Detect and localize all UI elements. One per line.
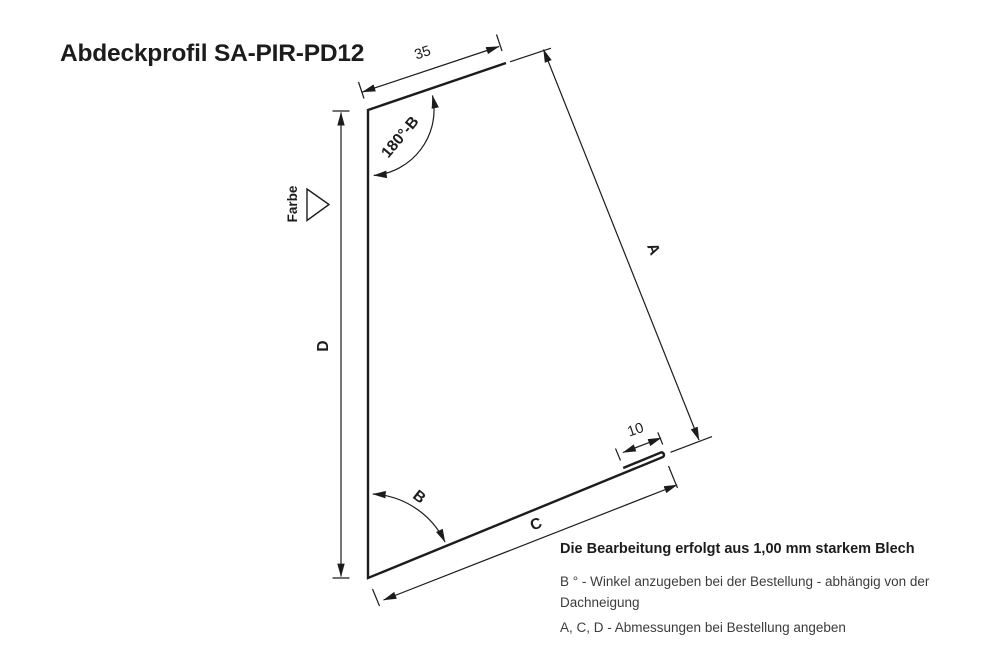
- page-title: Abdeckprofil SA-PIR-PD12: [60, 40, 364, 68]
- angle-arc: [373, 494, 445, 542]
- color-triangle-icon: [307, 189, 329, 221]
- angle-label-b: B: [409, 487, 428, 507]
- color-side-marker: Farbe: [285, 185, 329, 222]
- dimension-line: [623, 438, 661, 453]
- dimension-label-d: D: [315, 340, 332, 351]
- angle-bottom: B: [373, 487, 445, 542]
- dimension-line: [544, 50, 700, 441]
- extension-stub: [373, 589, 380, 606]
- angle-top: 180°-B: [374, 96, 434, 176]
- color-marker-label: Farbe: [285, 185, 300, 222]
- dimensions-order-note: A, C, D - Abmessungen bei Bestellung ang…: [560, 617, 980, 638]
- dimension-label-a: A: [643, 241, 663, 258]
- notes-block: Die Bearbeitung erfolgt aus 1,00 mm star…: [560, 541, 980, 642]
- dimension-slant-side: A: [510, 48, 712, 452]
- dimension-label-c: C: [528, 515, 545, 535]
- extension-line: [510, 48, 551, 62]
- extension-line: [671, 437, 713, 453]
- angle-label-180-b: 180°-B: [378, 113, 422, 161]
- extension-stub: [616, 449, 621, 461]
- angle-order-note: B ° - Winkel anzugeben bei der Bestellun…: [560, 571, 980, 613]
- material-note: Die Bearbeitung erfolgt aus 1,00 mm star…: [560, 541, 980, 557]
- dimension-label-10: 10: [625, 420, 645, 440]
- extension-stub: [359, 82, 365, 99]
- dimension-height: D: [315, 111, 350, 578]
- dimension-label-35: 35: [413, 43, 433, 63]
- drawing-page: Abdeckprofil SA-PIR-PD12 35 D: [0, 0, 1000, 667]
- extension-stub: [497, 35, 503, 52]
